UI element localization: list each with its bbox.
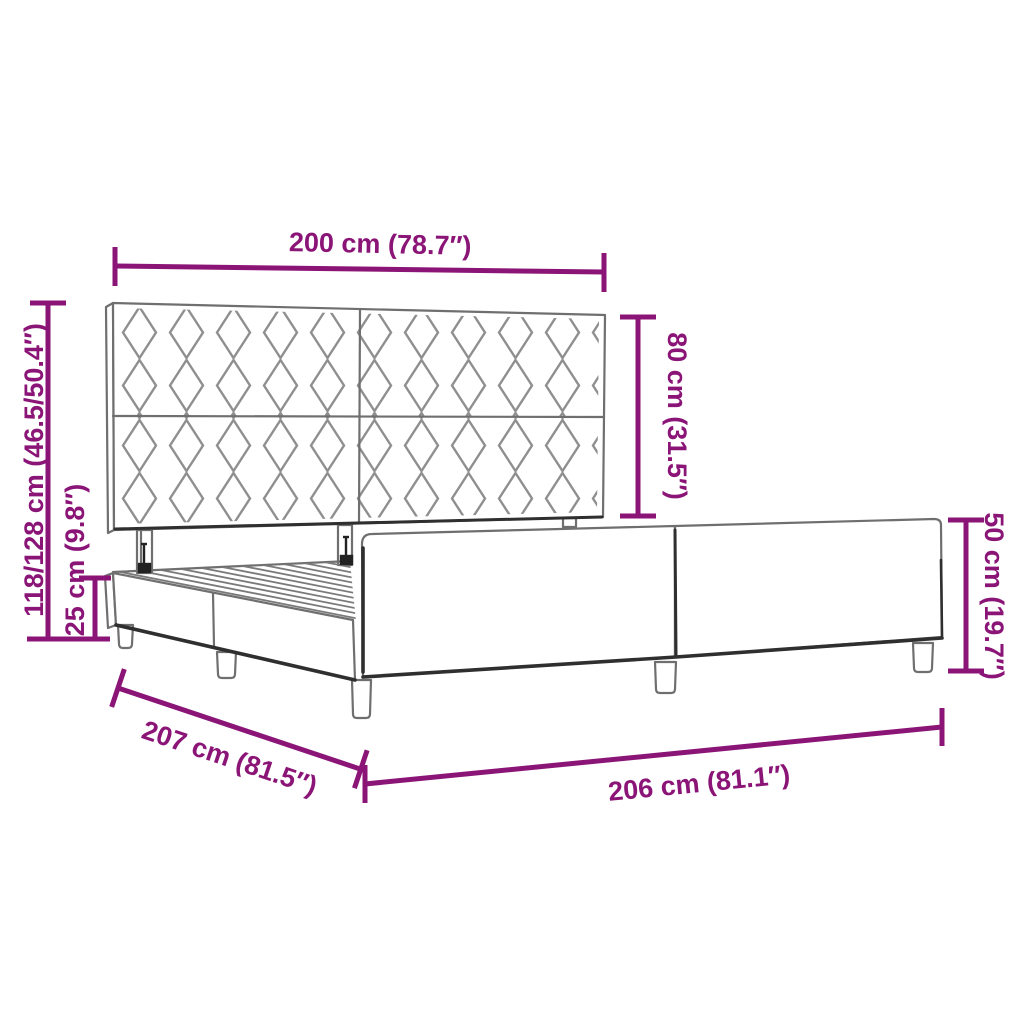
diagram-canvas: 200 cm (78.7″) 80 cm (31.5″) 50 cm (19.7… xyxy=(0,0,1024,1024)
dim-side-rail-height xyxy=(948,520,984,671)
bed-leg-5 xyxy=(913,643,933,672)
base-frame-seam xyxy=(213,593,214,646)
dim-base-frame-height-label: 25 cm (9.8″) xyxy=(60,484,90,637)
bolt-nut xyxy=(139,564,150,572)
bed-leg-2 xyxy=(217,652,236,678)
dim-side-rail-height-label: 50 cm (19.7″) xyxy=(979,512,1009,680)
dim-headboard-panel-height-label: 80 cm (31.5″) xyxy=(662,332,692,500)
bed-line-art xyxy=(100,295,942,718)
bed-frame-diagram: 200 cm (78.7″) 80 cm (31.5″) 50 cm (19.7… xyxy=(0,0,1024,1024)
dim-headboard-width-label: 200 cm (78.7″) xyxy=(289,227,472,261)
side-rail-section-front xyxy=(675,519,942,657)
side-rail-section-rear xyxy=(362,526,675,677)
bolt-nut xyxy=(341,556,352,564)
bed-leg-3 xyxy=(352,680,371,718)
side-rail-seam xyxy=(675,530,676,655)
dim-frame-length-label: 206 cm (81.1″) xyxy=(607,759,792,807)
dim-headboard-panel-height xyxy=(620,317,656,516)
bed-leg-4 xyxy=(655,662,676,693)
dim-overall-height-label: 118/128 cm (46.5/50.4″) xyxy=(19,323,49,617)
dim-line xyxy=(115,266,604,272)
side-rail-right-edge-shade xyxy=(941,560,942,636)
headboard-divider-vertical xyxy=(359,309,360,523)
